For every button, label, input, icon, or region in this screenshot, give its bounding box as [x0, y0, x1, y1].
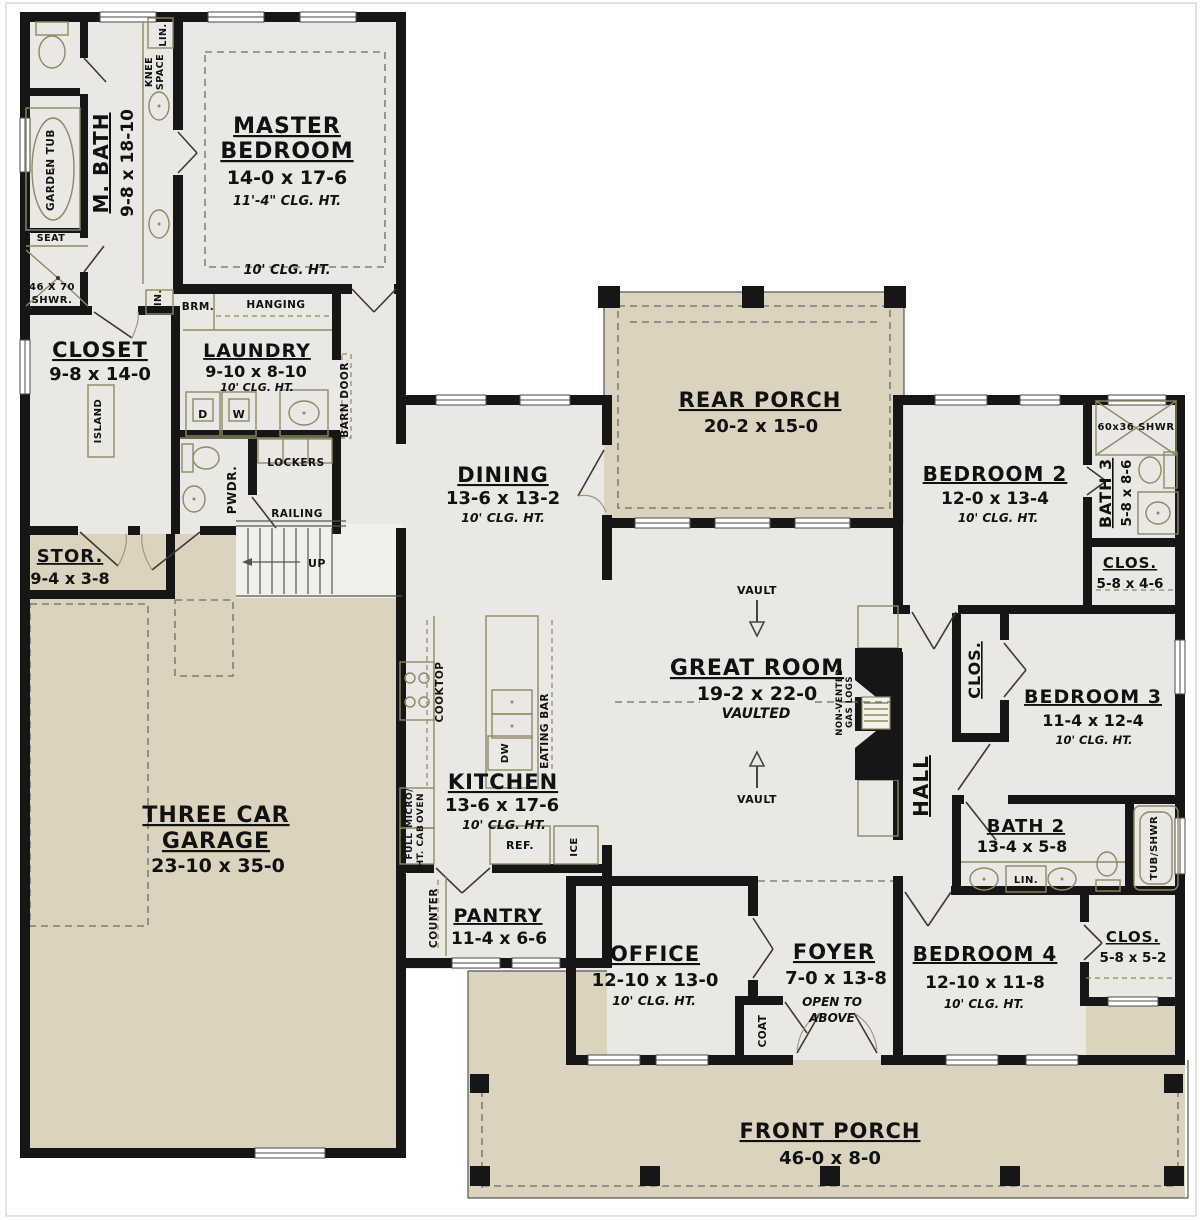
label-stor-dims: 9-4 x 3-8	[30, 569, 109, 588]
label-m-bath-dims: 9-8 x 18-10	[118, 109, 138, 217]
label-clos-bed3: CLOS.	[965, 641, 984, 699]
label-island: ISLAND	[93, 399, 104, 444]
label-gas1: NON-VENTED	[835, 668, 845, 736]
label-micro2: OVEN	[416, 793, 426, 823]
label-knee1: KNEE	[144, 57, 155, 87]
label-garage-dims: 23-10 x 35-0	[151, 855, 285, 877]
label-ref: REF.	[506, 839, 534, 852]
label-master-dims: 14-0 x 17-6	[227, 167, 348, 189]
label-great-room-note: VAULTED	[722, 706, 791, 722]
label-vault-bottom: VAULT	[737, 793, 777, 806]
label-garage-2: GARAGE	[162, 829, 270, 854]
label-knee2: SPACE	[155, 54, 166, 90]
label-pwdr: PWDR.	[225, 466, 239, 515]
label-closet: CLOSET	[52, 338, 148, 362]
label-bath3-dims: 5-8 x 8-6	[1119, 460, 1135, 527]
label-dining: DINING	[457, 463, 548, 487]
label-ice: ICE	[569, 837, 580, 856]
label-great-room: GREAT ROOM	[670, 656, 844, 681]
label-bath2-dims: 13-4 x 5-8	[977, 837, 1067, 856]
label-lin-mid: LIN.	[153, 289, 164, 312]
label-eating-bar: EATING BAR	[539, 693, 551, 769]
label-kitchen-note: 10' CLG. HT.	[462, 817, 546, 832]
label-m-bath: M. BATH	[89, 112, 113, 213]
label-stor: STOR.	[37, 546, 104, 567]
label-up: UP	[308, 557, 326, 570]
label-tub-shwr: TUB/SHWR	[1149, 816, 1160, 881]
label-foyer-dims: 7-0 x 13-8	[785, 968, 887, 989]
label-pantry: PANTRY	[453, 905, 542, 927]
label-office-note: 10' CLG. HT.	[612, 993, 696, 1008]
label-front-porch-dims: 46-0 x 8-0	[779, 1148, 881, 1169]
label-shwr46a: 46 X 70	[29, 282, 75, 293]
label-dw: DW	[500, 743, 511, 763]
label-coat: COAT	[757, 1014, 769, 1047]
label-foyer-note2: ABOVE	[808, 1011, 855, 1025]
label-barn-door: BARN DOOR	[339, 362, 351, 438]
label-bath2: BATH 2	[987, 816, 1065, 837]
label-rear-porch: REAR PORCH	[679, 388, 842, 412]
label-seat: SEAT	[37, 233, 65, 244]
label-master-bedroom: MASTER	[233, 114, 341, 139]
label-hall: HALL	[909, 755, 933, 817]
label-bedroom3-note: 10' CLG. HT.	[1056, 733, 1133, 747]
label-bedroom4: BEDROOM 4	[913, 942, 1058, 966]
label-clos-bed4: CLOS.	[1106, 928, 1160, 946]
label-bedroom3-dims: 11-4 x 12-4	[1042, 711, 1144, 730]
label-vault-top: VAULT	[737, 584, 777, 597]
label-gas2: GAS LOGS	[845, 676, 855, 728]
label-laundry-dims: 9-10 x 8-10	[205, 362, 307, 381]
label-front-porch: FRONT PORCH	[740, 1119, 921, 1143]
label-master-note: 11'-4" CLG. HT.	[233, 194, 341, 209]
label-clos-bath3-dims: 5-8 x 4-6	[1097, 576, 1164, 592]
label-micro1: MICRO/	[405, 788, 415, 828]
label-shwr60: 60x36 SHWR	[1097, 422, 1174, 433]
label-laundry-note: 10' CLG. HT.	[220, 381, 294, 394]
label-railing: RAILING	[271, 508, 323, 520]
label-garden-tub: GARDEN TUB	[45, 129, 57, 211]
label-laundry: LAUNDRY	[203, 340, 311, 362]
label-cooktop: COOKTOP	[434, 662, 446, 723]
label-lin-top: LIN.	[158, 23, 169, 46]
label-garage-1: THREE CAR	[142, 803, 289, 828]
label-shwr46b: SHWR.	[32, 295, 73, 306]
label-great-room-dims: 19-2 x 22-0	[697, 683, 818, 705]
label-kitchen: KITCHEN	[448, 770, 558, 794]
label-clos-bed4-dims: 5-8 x 5-2	[1100, 950, 1167, 966]
floor-plan-svg: MASTER BEDROOM 14-0 x 17-6 11'-4" CLG. H…	[0, 0, 1200, 1220]
label-bedroom4-note: 10' CLG. HT.	[944, 997, 1024, 1011]
label-lin-bath2: LIN.	[1014, 875, 1038, 886]
label-foyer-note1: OPEN TO	[802, 995, 862, 1009]
label-washer: W	[233, 408, 246, 421]
label-dryer: D	[198, 408, 208, 421]
label-office: OFFICE	[610, 942, 700, 966]
label-office-dims: 12-10 x 13-0	[592, 970, 719, 991]
label-lockers: LOCKERS	[267, 457, 324, 469]
label-bedroom2-dims: 12-0 x 13-4	[941, 489, 1049, 509]
label-pantry-dims: 11-4 x 6-6	[451, 929, 547, 949]
label-bedroom3: BEDROOM 3	[1024, 686, 1162, 708]
label-rear-porch-dims: 20-2 x 15-0	[704, 416, 818, 437]
label-master-bedroom-2: BEDROOM	[220, 139, 353, 164]
label-master-note2: 10' CLG. HT.	[243, 263, 330, 278]
label-bedroom2-note: 10' CLG. HT.	[958, 511, 1038, 525]
label-closet-dims: 9-8 x 14-0	[49, 364, 151, 385]
label-bedroom4-dims: 12-10 x 11-8	[925, 973, 1045, 993]
floor-plan: MASTER BEDROOM 14-0 x 17-6 11'-4" CLG. H…	[0, 0, 1200, 1220]
label-dining-dims: 13-6 x 13-2	[446, 488, 560, 509]
label-bath3: BATH 3	[1096, 458, 1115, 528]
label-foyer: FOYER	[793, 940, 875, 964]
label-kitchen-dims: 13-6 x 17-6	[445, 795, 559, 816]
label-hanging: HANGING	[246, 299, 305, 311]
label-cab1: FULL	[405, 833, 415, 860]
label-counter: COUNTER	[428, 888, 440, 948]
label-cab2: HT. CAB	[416, 825, 426, 868]
label-bedroom2: BEDROOM 2	[923, 462, 1068, 486]
label-brm: BRM.	[182, 301, 215, 313]
label-dining-note: 10' CLG. HT.	[461, 510, 545, 525]
label-clos-bath3: CLOS.	[1103, 554, 1157, 572]
